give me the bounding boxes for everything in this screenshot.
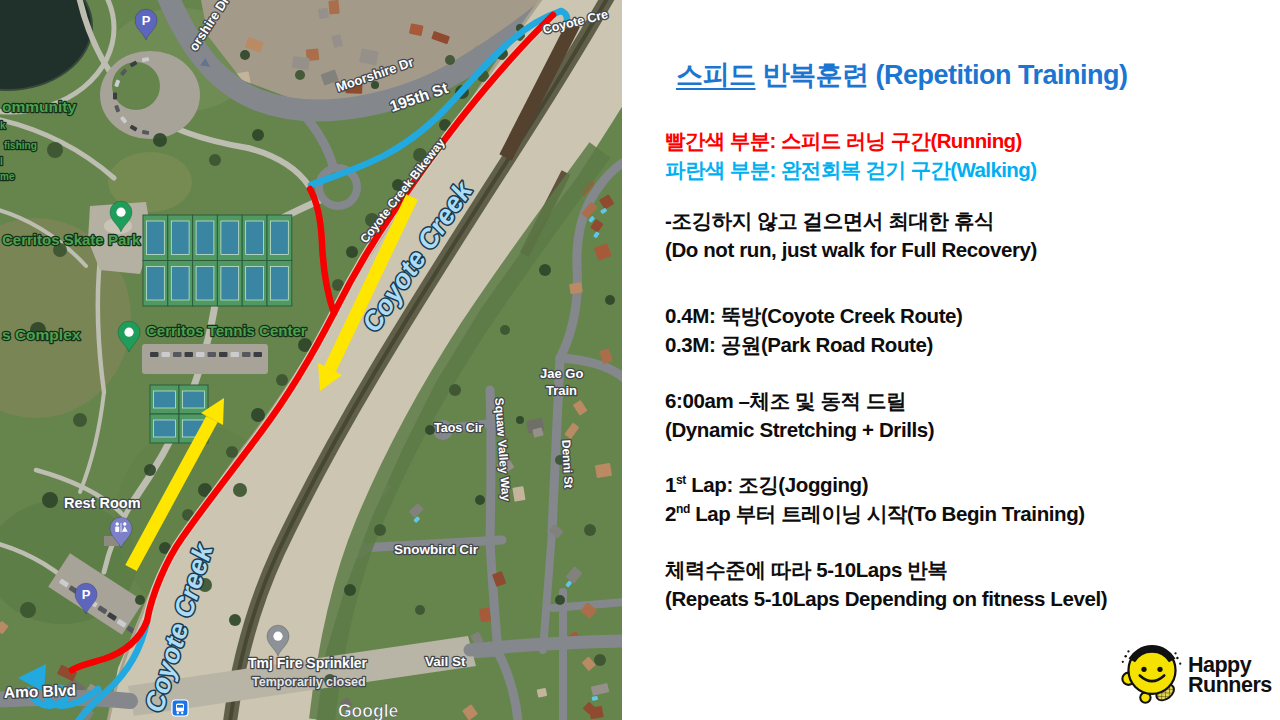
tree: [555, 595, 565, 605]
logo-text: Happy Runners: [1188, 655, 1272, 695]
tree: [415, 605, 425, 615]
street-label-denni: Denni St: [559, 439, 576, 488]
note-recovery: -조깅하지 않고 걸으면서 최대한 휴식 (Do not run, just w…: [665, 206, 1037, 264]
info-panel: 스피드 반복훈련 (Repetition Training) 빨간색 부분: 스…: [622, 0, 1280, 720]
mascot-eye-left: [1141, 667, 1146, 672]
tree: [594, 654, 606, 666]
distance-creek: 0.4M: 뚝방(Coyote Creek Route): [665, 301, 962, 330]
satellite-map: Moorshire Dr 195th St orshire Dr Coyote …: [0, 0, 622, 720]
tennis-court: [271, 221, 289, 255]
parking-pin-letter: P: [82, 587, 91, 602]
parking-pin-letter: P: [142, 13, 151, 28]
car: [242, 352, 251, 357]
poi-label-tmj: Tmj Fire Sprinkler: [248, 655, 368, 671]
car: [185, 352, 194, 357]
tree: [344, 584, 356, 596]
tree: [42, 492, 58, 508]
title-underlined: 스피드: [676, 60, 756, 90]
tree: [233, 483, 247, 497]
poi-label-jae1: Jae Go: [540, 366, 583, 381]
car: [162, 352, 171, 357]
tennis-court: [147, 267, 165, 301]
note-warmup: 6:00am –체조 및 동적 드릴 (Dynamic Stretching +…: [665, 386, 934, 444]
street-label-taos: Taos Cir: [434, 421, 483, 435]
distance-park: 0.3M: 공원(Park Road Route): [665, 330, 962, 359]
title-rest: 반복훈련 (Repetition Training): [756, 60, 1128, 90]
tree: [475, 495, 485, 505]
house: [318, 8, 329, 20]
tennis-court: [183, 391, 205, 408]
poi-label-frag-l: l: [0, 156, 3, 167]
tennis-court: [246, 267, 264, 301]
warmup-en: (Dynamic Stretching + Drills): [665, 415, 934, 444]
transit-stop-icon[interactable]: [172, 700, 188, 716]
tennis-court: [221, 267, 239, 301]
house: [595, 463, 612, 478]
slide-title: 스피드 반복훈련 (Repetition Training): [676, 57, 1128, 93]
poi-label-jae2: Train: [546, 383, 577, 398]
note-recovery-en: (Do not run, just walk for Full Recovery…: [665, 235, 1037, 264]
poi-label-skate-park: Cerritos Skate Park: [2, 231, 141, 248]
poi-label-frag-me: me: [0, 171, 15, 182]
poi-label-frag-k: k: [0, 120, 6, 131]
parking-lot-tennis: [142, 344, 268, 374]
slide: Moorshire Dr 195th St orshire Dr Coyote …: [0, 0, 1280, 720]
tree: [226, 446, 238, 458]
car: [219, 352, 228, 357]
map-canvas: Moorshire Dr 195th St orshire Dr Coyote …: [0, 0, 622, 720]
tree: [539, 264, 551, 276]
car: [173, 352, 182, 357]
tree: [500, 325, 510, 335]
repeats-ko: 체력수준에 따라 5-10Laps 반복: [665, 555, 1107, 584]
tree: [144, 464, 156, 476]
note-distances: 0.4M: 뚝방(Coyote Creek Route) 0.3M: 공원(Pa…: [665, 301, 962, 359]
tree: [153, 133, 167, 147]
tennis-court: [154, 420, 176, 437]
note-recovery-ko: -조깅하지 않고 걸으면서 최대한 휴식: [665, 206, 1037, 235]
tree: [73, 413, 87, 427]
car: [231, 352, 240, 357]
tree: [252, 129, 264, 141]
house: [328, 0, 339, 14]
logo-line1: Happy: [1188, 655, 1272, 675]
happy-runners-logo: Happy Runners: [1120, 642, 1272, 708]
tennis-court: [271, 267, 289, 301]
lap1-line: 1st Lap: 조깅(Jogging): [665, 470, 1085, 499]
house: [569, 282, 583, 294]
logo-line2: Runners: [1188, 675, 1272, 695]
street-label-amo: Amo Blvd: [4, 681, 77, 701]
tennis-court: [154, 391, 176, 408]
tennis-court: [196, 267, 214, 301]
tree: [240, 50, 250, 60]
tree: [47, 142, 63, 158]
car: [150, 352, 159, 357]
mascot-eye-right: [1157, 667, 1162, 672]
poi-label-community: ommunity: [2, 98, 76, 115]
street-label-vail: Vail St: [425, 654, 466, 669]
tennis-court: [171, 221, 189, 255]
tree: [295, 70, 305, 80]
tree: [276, 374, 288, 386]
lap2-line: 2nd Lap 부터 트레이닝 시작(To Begin Training): [665, 499, 1085, 528]
tree: [516, 416, 524, 424]
tennis-court: [196, 221, 214, 255]
tree: [584, 524, 596, 536]
car: [254, 352, 263, 357]
tree: [135, 595, 145, 605]
car: [113, 93, 117, 100]
tree: [20, 602, 36, 618]
repeats-en: (Repeats 5-10Laps Depending on fitness L…: [665, 584, 1107, 613]
poi-label-tmj-status: Temporarily closed: [252, 675, 366, 689]
warmup-ko: 6:00am –체조 및 동적 드릴: [665, 386, 934, 415]
tree: [605, 295, 615, 305]
note-laps: 1st Lap: 조깅(Jogging) 2nd Lap 부터 트레이닝 시작(…: [665, 470, 1085, 528]
note-repeats: 체력수준에 따라 5-10Laps 반복 (Repeats 5-10Laps D…: [665, 555, 1107, 613]
tree: [449, 384, 461, 396]
tree: [229, 614, 241, 626]
car: [196, 352, 205, 357]
tennis-court: [221, 221, 239, 255]
legend-running: 빨간색 부분: 스피드 러닝 구간(Running): [665, 127, 1022, 155]
tree: [445, 55, 455, 65]
car: [208, 352, 217, 357]
happy-runners-mascot: [1120, 642, 1184, 708]
tree: [251, 408, 265, 422]
google-watermark: Google: [338, 701, 399, 720]
legend-walking: 파란색 부분: 완전회복 걷기 구간(Walking): [665, 156, 1036, 184]
street-label-snowbird: Snowbird Cir: [394, 542, 479, 557]
poi-label-rest-room: Rest Room: [64, 495, 141, 511]
poi-label-fishing: fishing: [4, 140, 37, 151]
parking-island: [112, 62, 160, 110]
poi-label-tennis-center: Cerritos Tennis Center: [146, 322, 307, 339]
tree: [209, 154, 221, 166]
tennis-court: [171, 267, 189, 301]
tree: [374, 524, 386, 536]
tree: [346, 246, 358, 258]
house: [589, 706, 604, 720]
poi-label-complex: s Complex: [2, 326, 81, 343]
tennis-court: [147, 221, 165, 255]
house: [479, 608, 491, 623]
house: [512, 486, 525, 502]
tennis-court: [246, 221, 264, 255]
house: [292, 56, 310, 70]
